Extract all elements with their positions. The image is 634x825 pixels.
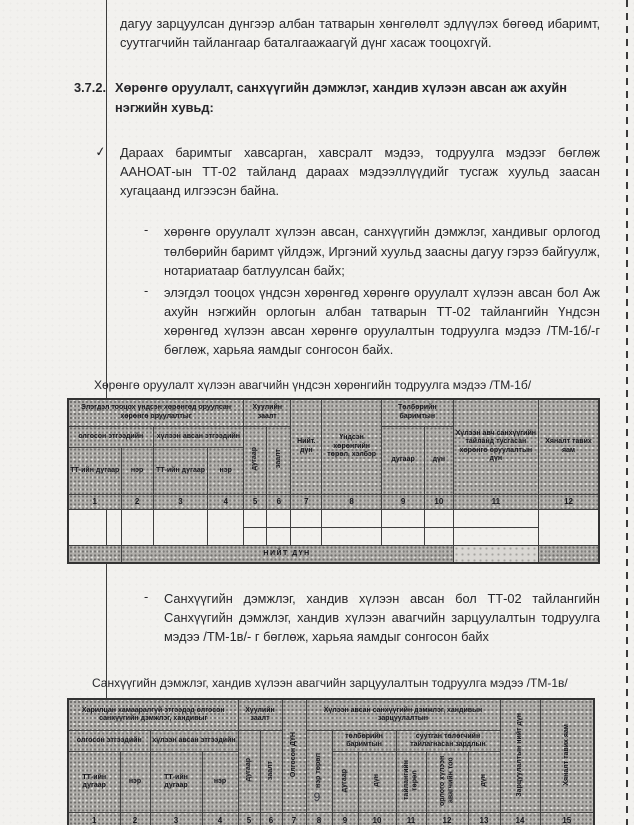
body-cell bbox=[208, 509, 244, 545]
body-cell bbox=[425, 527, 454, 545]
col-number: 7 bbox=[291, 494, 322, 509]
header-cell: заалт bbox=[267, 426, 291, 494]
header-cell: нэр bbox=[121, 447, 153, 494]
col-number: 3 bbox=[153, 494, 208, 509]
body-cell bbox=[244, 509, 267, 527]
col-number: 7 bbox=[282, 813, 306, 825]
header-cell: олгосон этгээдийн bbox=[68, 426, 153, 447]
col-number: 11 bbox=[453, 494, 538, 509]
header-cell: ТТ-ийн дугаар bbox=[68, 447, 121, 494]
col-number: 5 bbox=[238, 813, 260, 825]
header-cell: хүлээн авсан этгээдийн bbox=[153, 426, 243, 447]
body-cell bbox=[291, 527, 322, 545]
body-cell bbox=[291, 509, 322, 527]
bullet-text: Санхүүгийн дэмжлэг, хандив хүлээн авсан … bbox=[164, 589, 600, 647]
header-cell: Үндсэн хөрөнгийн төрөл, хэлбэр bbox=[322, 399, 382, 495]
header-cell: Хяналт тавих яам bbox=[539, 399, 599, 495]
body-cell bbox=[267, 527, 291, 545]
bullet-text: хөрөнгө оруулалт хүлээн авсан, санхүүгий… bbox=[164, 222, 600, 280]
body-cell bbox=[539, 509, 599, 545]
header-cell: төлбөрийн баримтын bbox=[332, 731, 396, 752]
col-number: 2 bbox=[120, 813, 150, 825]
body-cell bbox=[382, 509, 425, 527]
col-number: 10 bbox=[358, 813, 396, 825]
col-number: 2 bbox=[121, 494, 153, 509]
scanned-document-page: дагуу зарцуулсан дүнгээр албан татварын … bbox=[0, 0, 634, 825]
col-number: 14 bbox=[500, 813, 540, 825]
body-cell bbox=[121, 509, 153, 545]
header-cell: Хүлээн авч санхүүгийн тайланд тусгасан х… bbox=[453, 399, 538, 495]
col-number: 11 bbox=[396, 813, 426, 825]
page-number: 9 bbox=[0, 790, 634, 804]
list-item: - элэгдэл тооцох үндсэн хөрөнгөд хөрөнгө… bbox=[144, 283, 600, 360]
table-tm1b: Элэгдэл тооцох үндсэн хөрөнгөд оруулсан … bbox=[67, 398, 600, 564]
body-cell bbox=[153, 509, 208, 545]
col-number: 8 bbox=[322, 494, 382, 509]
body-cell bbox=[382, 527, 425, 545]
col-number: 1 bbox=[68, 813, 120, 825]
bullet-text: элэгдэл тооцох үндсэн хөрөнгөд хөрөнгө о… bbox=[164, 283, 600, 360]
col-number: 5 bbox=[244, 494, 267, 509]
total-row-cell bbox=[68, 545, 121, 563]
header-cell: олгосон этгээдийн bbox=[68, 731, 150, 752]
intro-paragraph: дагуу зарцуулсан дүнгээр албан татварын … bbox=[120, 14, 600, 52]
col-number: 15 bbox=[540, 813, 594, 825]
header-cell: Төлбөрийн баримтын bbox=[382, 399, 454, 427]
col-number: 8 bbox=[306, 813, 332, 825]
section-title: Хөрөнгө оруулалт, санхүүгийн дэмжлэг, ха… bbox=[115, 78, 600, 116]
header-cell: дугаар bbox=[244, 426, 267, 494]
bullet-list: - Санхүүгийн дэмжлэг, хандив хүлээн авса… bbox=[144, 589, 600, 647]
col-number: 12 bbox=[426, 813, 468, 825]
header-cell: нэр bbox=[208, 447, 244, 494]
dash-bullet-icon: - bbox=[144, 222, 164, 280]
col-number: 13 bbox=[468, 813, 500, 825]
col-number: 4 bbox=[208, 494, 244, 509]
dash-bullet-icon: - bbox=[144, 283, 164, 360]
col-number: 6 bbox=[260, 813, 282, 825]
header-cell: Нийт. дүн bbox=[291, 399, 322, 495]
body-cell bbox=[453, 527, 538, 545]
col-number: 3 bbox=[150, 813, 202, 825]
total-row-cell bbox=[453, 545, 538, 563]
check-paragraph: Дараах баримтыг хавсарган, хавсралт мэдэ… bbox=[120, 143, 600, 201]
dash-bullet-icon: - bbox=[144, 589, 164, 647]
header-cell: Хуулийн заалт bbox=[244, 399, 291, 427]
total-row-cell bbox=[539, 545, 599, 563]
header-cell: суутган төлөгчийн тайлагнасан зардлын bbox=[396, 731, 500, 752]
list-item: - Санхүүгийн дэмжлэг, хандив хүлээн авса… bbox=[144, 589, 600, 647]
header-cell: Хүлээн авсан санхүүгийн дэмжлэг, хандивы… bbox=[306, 699, 500, 731]
body-cell bbox=[453, 509, 538, 527]
col-number: 4 bbox=[202, 813, 238, 825]
table2-caption: Санхүүгийн дэмжлэг, хандив хүлээн авагчи… bbox=[92, 676, 600, 690]
body-cell bbox=[322, 509, 382, 527]
body-cell bbox=[322, 527, 382, 545]
header-cell: Хуулийн заалт bbox=[238, 699, 282, 731]
list-item: - хөрөнгө оруулалт хүлээн авсан, санхүүг… bbox=[144, 222, 600, 280]
table-tm1v: Харилцан хамааралгүй этгээдэд олгосон са… bbox=[67, 698, 595, 825]
col-number: 9 bbox=[382, 494, 425, 509]
body-cell bbox=[425, 509, 454, 527]
body-cell bbox=[267, 509, 291, 527]
header-cell: Харилцан хамааралгүй этгээдэд олгосон са… bbox=[68, 699, 238, 731]
col-number: 1 bbox=[68, 494, 121, 509]
col-number: 12 bbox=[539, 494, 599, 509]
header-cell: ТТ-ийн дугаар bbox=[153, 447, 208, 494]
section-heading: 3.7.2. Хөрөнгө оруулалт, санхүүгийн дэмж… bbox=[74, 78, 600, 116]
section-number: 3.7.2. bbox=[74, 78, 106, 116]
bullet-list: - хөрөнгө оруулалт хүлээн авсан, санхүүг… bbox=[144, 222, 600, 359]
total-row-label: НИЙТ ДҮН bbox=[121, 545, 453, 563]
col-number: 6 bbox=[267, 494, 291, 509]
header-cell: дугаар bbox=[382, 426, 425, 494]
header-cell: хүлээн авсан этгээдийн bbox=[150, 731, 238, 752]
col-number: 9 bbox=[332, 813, 358, 825]
header-cell: Элэгдэл тооцох үндсэн хөрөнгөд оруулсан … bbox=[68, 399, 244, 427]
body-cell bbox=[68, 509, 121, 545]
col-number: 10 bbox=[425, 494, 454, 509]
check-item: ✓ Дараах баримтыг хавсарган, хавсралт мэ… bbox=[98, 143, 600, 201]
header-cell: дүн bbox=[425, 426, 454, 494]
body-cell bbox=[244, 527, 267, 545]
table1-caption: Хөрөнгө оруулалт хүлээн авагчийн үндсэн … bbox=[94, 378, 600, 392]
